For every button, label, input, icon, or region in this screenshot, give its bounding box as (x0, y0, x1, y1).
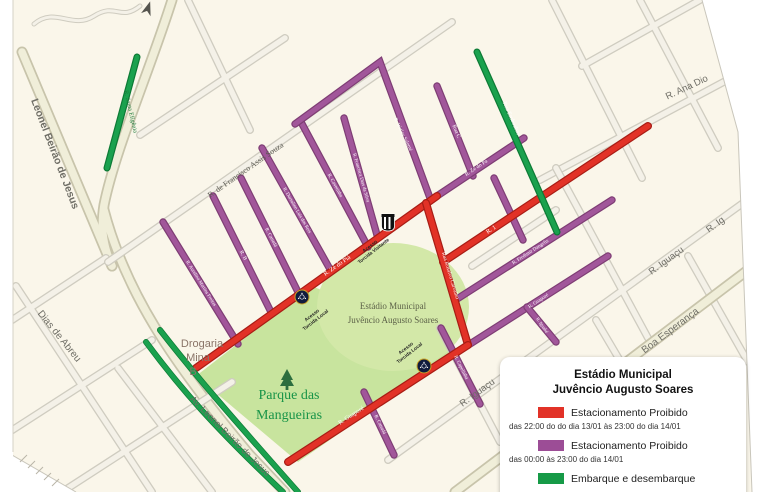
map-screenshot: Leonel Beirão de Jesus Av. Leonel Beirão… (0, 0, 761, 492)
legend-title: Estádio Municipal Juvêncio Augusto Soare… (508, 368, 738, 398)
legend-item-red: Estacionamento Proibido das 22:00 do do … (508, 407, 738, 431)
park-label-line2: Mangueiras (256, 408, 322, 423)
legend-item-label: Estacionamento Proibido (571, 440, 688, 452)
stadium-label-line2: Juvêncio Augusto Soares (348, 315, 439, 325)
stadium-label-line1: Estádio Municipal (360, 301, 427, 311)
legend-item-caption: das 00:00 às 23:00 do dia 14/01 (509, 455, 738, 464)
legend-title-line1: Estádio Municipal (508, 368, 738, 383)
pharmacy-line3: B (189, 366, 196, 378)
purple-swatch (538, 440, 564, 451)
round-club-badge-icon (295, 290, 309, 304)
pharmacy-line2: Mina (186, 352, 211, 364)
legend-item-purple: Estacionamento Proibido das 00:00 às 23:… (508, 440, 738, 464)
park-label-line1: Parque das (258, 388, 319, 403)
green-swatch (538, 473, 564, 484)
legend-item-green: Embarque e desembarque (508, 473, 738, 485)
map-edge-left (0, 0, 13, 492)
legend-item-label: Estacionamento Proibido (571, 407, 688, 419)
legend-item-label: Embarque e desembarque (571, 473, 695, 485)
red-swatch (538, 407, 564, 418)
pharmacy-line1: Drogaria (181, 338, 224, 350)
legend-card: Estádio Municipal Juvêncio Augusto Soare… (500, 357, 746, 492)
striped-shield-crest-icon (382, 214, 395, 231)
legend-title-line2: Juvêncio Augusto Soares (508, 383, 738, 398)
legend-item-caption: das 22:00 do do dia 13/01 às 23:00 do di… (509, 422, 738, 431)
round-club-badge-icon (417, 359, 431, 373)
